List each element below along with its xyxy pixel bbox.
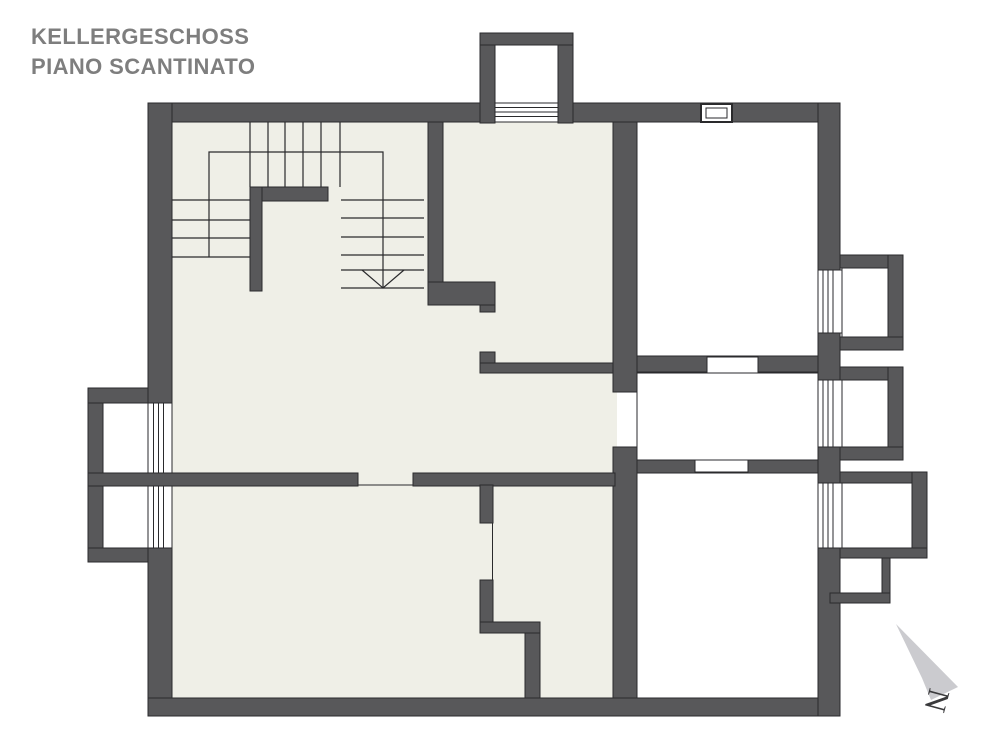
wall-topmid-bottom	[480, 363, 617, 373]
lightwell-right-small-floor	[840, 558, 882, 593]
wall-lightwell-r3-right	[912, 472, 927, 558]
window-right-2	[818, 380, 842, 447]
wall-lightwell-r3-bottom	[840, 548, 927, 558]
wall-stairhall-divider	[428, 122, 443, 282]
floor-plan-page: KELLERGESCHOSS PIANO SCANTINATO	[0, 0, 1000, 750]
wall-midright-bottom-b	[748, 460, 818, 473]
wall-cellar-partition-jog-h	[480, 622, 540, 633]
wall-stairhall-jog	[428, 282, 495, 305]
wall-lightwell-left-top	[88, 388, 148, 403]
wall-cellar-partition-jog-v	[525, 633, 540, 698]
wall-lightwell-r2-right	[888, 367, 903, 460]
room-middle-right-floor	[637, 373, 818, 460]
window-box-top-wall	[701, 104, 732, 122]
lightwell-left-lower-floor	[103, 486, 148, 548]
lightwell-right-1-floor	[842, 268, 888, 337]
wall-topright-bottom-a	[637, 356, 707, 372]
wall-lightwell-r1-right	[888, 255, 903, 350]
wall-lightwell-left-bottom	[88, 548, 148, 562]
wall-midright-bottom-a	[637, 460, 695, 473]
wall-lightwell-top-cap	[480, 33, 573, 45]
wall-long-divider-left	[88, 473, 358, 486]
wall-lightwell-r2-bottom	[840, 447, 903, 460]
wall-lightwell-top-left	[480, 33, 495, 123]
wall-central-lower	[613, 447, 637, 698]
window-right-3	[818, 483, 842, 548]
wall-cellar-partition-upper	[480, 485, 493, 523]
window-left-lower	[148, 486, 172, 548]
lightwell-right-3-floor	[842, 483, 912, 548]
wall-stair-newel-vertical	[250, 187, 262, 291]
wall-outer-bottom	[148, 698, 840, 716]
wall-lightwell-top-right	[558, 33, 573, 123]
room-top-right-floor	[637, 122, 818, 356]
lightwell-left-upper-floor	[103, 403, 148, 473]
wall-central-upper	[613, 122, 637, 392]
floor-left-unit	[172, 122, 617, 698]
wall-lightwell-r1-bottom	[840, 337, 903, 350]
lightwell-right-2-floor	[842, 380, 888, 447]
wall-topmid-door-notch	[480, 305, 495, 312]
wall-long-divider-right	[413, 473, 615, 486]
lightwell-top-floor	[495, 45, 558, 103]
wall-topright-bottom-b	[758, 356, 818, 372]
window-right-1	[818, 270, 842, 333]
window-top-lightwell	[495, 103, 558, 122]
window-left-upper	[148, 403, 172, 473]
north-arrow: N	[896, 624, 958, 716]
basement-floor-plan: N	[0, 0, 1000, 750]
room-bottom-right-floor	[637, 473, 818, 698]
wall-lightwell-small-bottom	[830, 593, 890, 603]
